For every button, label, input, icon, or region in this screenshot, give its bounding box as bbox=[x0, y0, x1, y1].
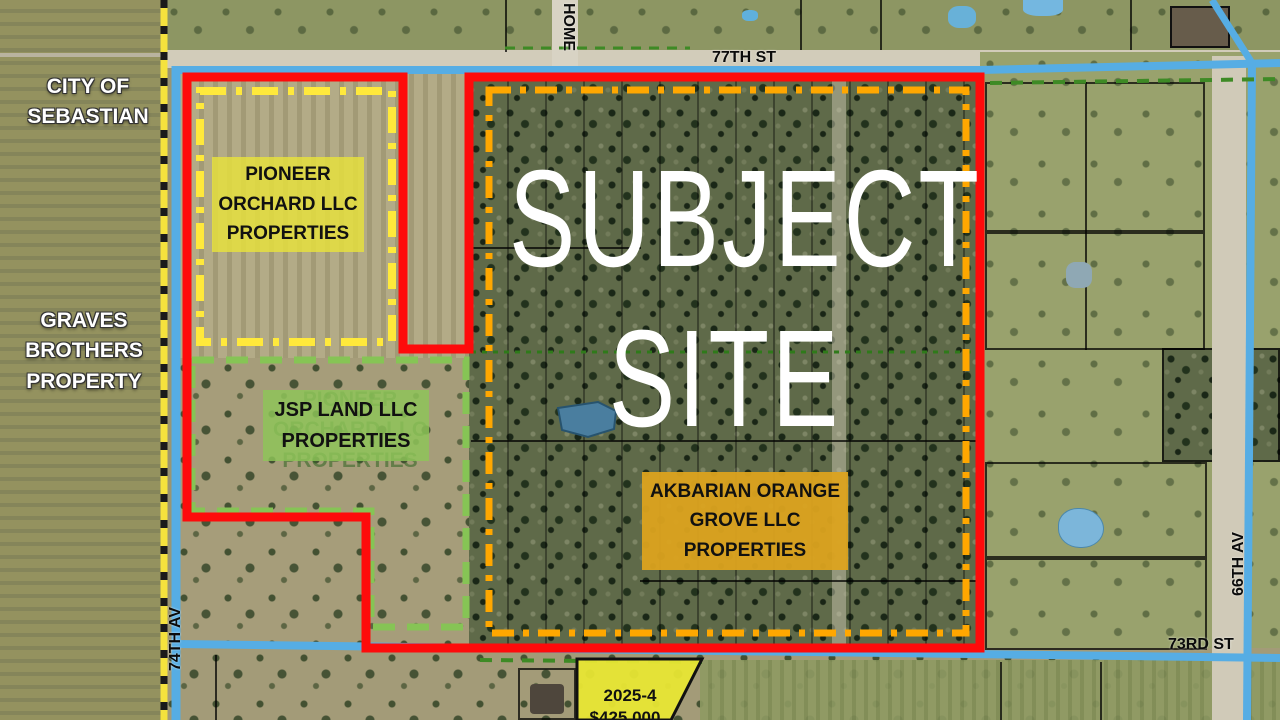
jsp-label-line: JSP LAND LLC bbox=[263, 395, 429, 426]
parcel-line bbox=[1130, 0, 1132, 50]
pond-northeast-blue bbox=[1023, 0, 1063, 16]
road-66th-surface bbox=[1212, 56, 1246, 720]
parcel-line bbox=[1085, 82, 1087, 350]
street-label-home: HOME bbox=[559, 0, 577, 57]
akbarian-label-line: AKBARIAN ORANGE bbox=[642, 477, 848, 506]
subject-site-title-line1: SUBJECT bbox=[509, 140, 941, 299]
pioneer-label-line: ORCHARD LLC bbox=[212, 190, 364, 219]
pond-east-large bbox=[1058, 508, 1104, 548]
label-city-of-sebastian: CITY OF SEBASTIAN bbox=[8, 72, 168, 133]
akbarian-label-line: GROVE LLC bbox=[642, 506, 848, 535]
akbarian-label-box: AKBARIAN ORANGE GROVE LLC PROPERTIES bbox=[642, 472, 848, 570]
graves-label-line: GRAVES bbox=[4, 306, 164, 336]
parcel-rect-east bbox=[985, 232, 1205, 350]
parcel-line bbox=[640, 580, 980, 582]
graves-label-line: PROPERTY bbox=[4, 367, 164, 397]
parcel-line bbox=[1100, 662, 1102, 720]
pond-north-blue bbox=[948, 6, 976, 28]
pioneer-label-line: PIONEER bbox=[212, 160, 364, 189]
street-label-73rd-st: 73RD ST bbox=[1168, 636, 1234, 654]
parcel-line bbox=[505, 0, 507, 52]
city-label-line: CITY OF bbox=[8, 72, 168, 102]
pond-east-small bbox=[1066, 262, 1092, 288]
jsp-label-line: PROPERTIES bbox=[263, 426, 429, 457]
listing-case-number: 2025-4 bbox=[575, 686, 685, 706]
aerial-parcel-map: PIONEER ORCHARD LLC PROPERTIES PIONEER O… bbox=[0, 0, 1280, 720]
pond-south-dark bbox=[530, 684, 564, 714]
city-label-line: SEBASTIAN bbox=[8, 102, 168, 132]
jsp-land-label-box: JSP LAND LLC PROPERTIES bbox=[263, 390, 429, 461]
parcel-line bbox=[1000, 662, 1002, 720]
listing-price: $425,000 bbox=[570, 708, 680, 720]
pond-northeast-dark bbox=[1170, 6, 1230, 48]
subject-site-title-line2: SITE bbox=[509, 300, 941, 459]
parcel-line bbox=[800, 0, 802, 50]
farm-road-west bbox=[0, 53, 164, 57]
parcel-line bbox=[880, 0, 882, 50]
akbarian-label-line: PROPERTIES bbox=[642, 536, 848, 565]
pioneer-orchard-label-box: PIONEER ORCHARD LLC PROPERTIES bbox=[212, 157, 364, 252]
graves-label-line: BROTHERS bbox=[4, 336, 164, 366]
street-label-66th-av: 66TH AV bbox=[1230, 528, 1248, 600]
parcel-line bbox=[215, 655, 217, 720]
pool-north-small bbox=[742, 10, 758, 21]
pioneer-label-line: PROPERTIES bbox=[212, 219, 364, 248]
orchard-rows-southeast bbox=[700, 660, 1280, 720]
street-label-74th-av: 74TH AV bbox=[167, 603, 185, 675]
parcel-rect-east bbox=[985, 82, 1205, 232]
street-label-77th-st: 77TH ST bbox=[712, 49, 776, 67]
fields-north-texture bbox=[164, 0, 1280, 52]
label-graves-brothers: GRAVES BROTHERS PROPERTY bbox=[4, 306, 164, 397]
